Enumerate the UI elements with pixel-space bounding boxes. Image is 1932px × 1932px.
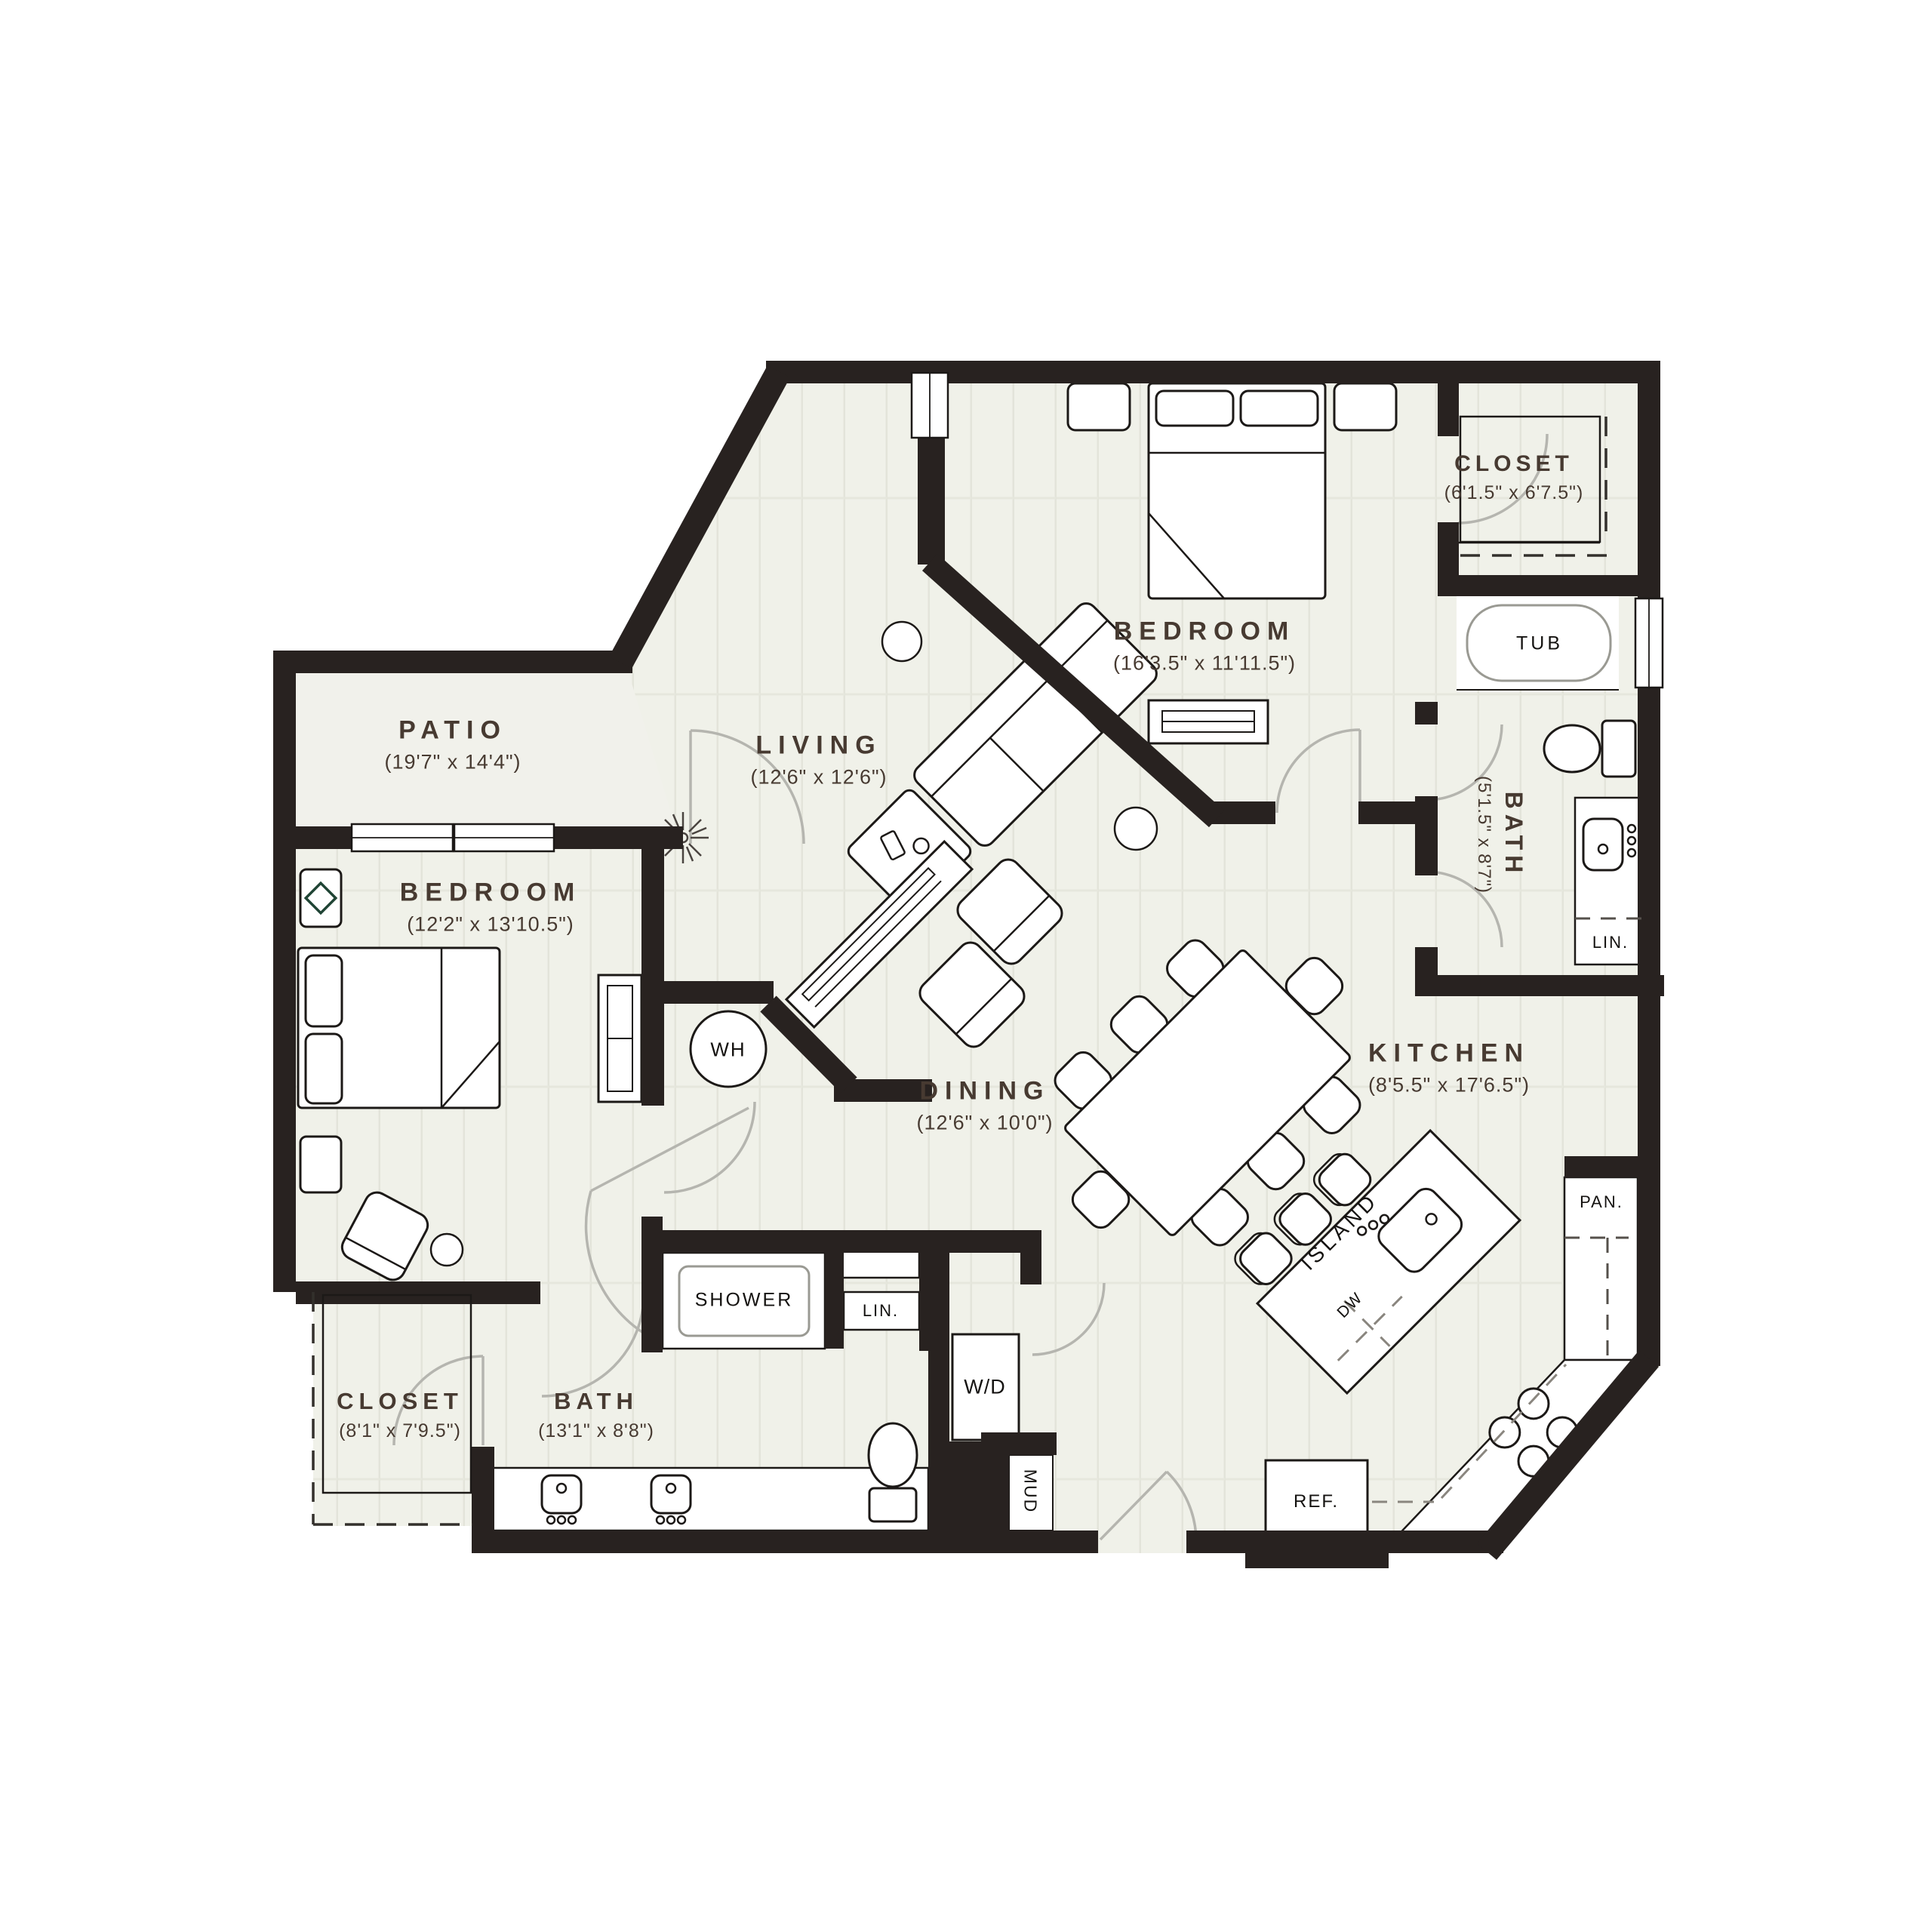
pantry-label: PAN. — [1580, 1192, 1623, 1212]
linen-mid-label: LIN. — [863, 1301, 899, 1321]
room-label-bath-bottom: BATH (13'1" x 8'8") — [538, 1388, 654, 1442]
room-label-kitchen: KITCHEN (8'5.5" x 17'6.5") — [1368, 1039, 1530, 1097]
room-dims-bedroom-left: (12'2" x 13'10.5") — [400, 913, 582, 937]
window-tub — [1635, 598, 1663, 688]
room-name-bath-bottom: BATH — [538, 1388, 654, 1415]
shower-label: SHOWER — [695, 1290, 794, 1312]
room-dims-living: (12'6" x 12'6") — [750, 766, 887, 789]
room-name-kitchen: KITCHEN — [1368, 1039, 1530, 1069]
room-label-bath-right: BATH (5'1.5" x 8'7") — [1473, 776, 1527, 894]
room-label-bedroom-left: BEDROOM (12'2" x 13'10.5") — [400, 878, 582, 937]
dresser-left-bedroom — [598, 975, 641, 1102]
room-dims-closet-top: (6'1.5" x 6'7.5") — [1444, 482, 1584, 504]
bed-top — [1149, 383, 1325, 598]
room-dims-dining: (12'6" x 10'0") — [916, 1112, 1053, 1135]
room-name-closet-bottom: CLOSET — [337, 1388, 463, 1415]
room-dims-bath-bottom: (13'1" x 8'8") — [538, 1420, 654, 1442]
room-label-closet-top: CLOSET (6'1.5" x 6'7.5") — [1444, 451, 1584, 504]
floor-plan-geometry — [0, 0, 1932, 1932]
room-name-bath-right: BATH — [1500, 776, 1527, 894]
room-name-dining: DINING — [916, 1077, 1053, 1106]
room-dims-bedroom-top: (16'3.5" x 11'11.5") — [1113, 652, 1296, 675]
room-name-living: LIVING — [750, 731, 887, 761]
tub-label: TUB — [1516, 633, 1563, 655]
room-label-bedroom-top: BEDROOM (16'3.5" x 11'11.5") — [1113, 617, 1296, 675]
mud-label: MUD — [1020, 1469, 1041, 1513]
dresser-top-bedroom — [1149, 700, 1268, 743]
refrigerator-label: REF. — [1294, 1491, 1339, 1512]
window-top — [912, 373, 948, 438]
windows-patio — [352, 824, 554, 851]
room-name-patio: PATIO — [384, 716, 521, 746]
room-label-patio: PATIO (19'7" x 14'4") — [384, 716, 521, 774]
toilet-bottom-icon — [869, 1423, 917, 1521]
bed-left — [298, 948, 500, 1108]
room-label-living: LIVING (12'6" x 12'6") — [750, 731, 887, 789]
floor-plan: PATIO (19'7" x 14'4") LIVING (12'6" x 12… — [0, 0, 1932, 1932]
linen-right-label: LIN. — [1592, 933, 1629, 952]
room-name-bedroom-top: BEDROOM — [1113, 617, 1296, 647]
room-dims-closet-bottom: (8'1" x 7'9.5") — [337, 1420, 463, 1442]
room-dims-kitchen: (8'5.5" x 17'6.5") — [1368, 1074, 1530, 1097]
washer-dryer-label: W/D — [964, 1376, 1005, 1399]
room-label-closet-bottom: CLOSET (8'1" x 7'9.5") — [337, 1388, 463, 1442]
room-label-dining: DINING (12'6" x 10'0") — [916, 1077, 1053, 1135]
room-name-bedroom-left: BEDROOM — [400, 878, 582, 908]
room-dims-bath-right: (5'1.5" x 8'7") — [1473, 776, 1494, 894]
room-name-closet-top: CLOSET — [1444, 451, 1584, 477]
water-heater-label: WH — [710, 1038, 746, 1062]
room-dims-patio: (19'7" x 14'4") — [384, 751, 521, 774]
bath-bottom-vanity — [485, 1468, 928, 1531]
